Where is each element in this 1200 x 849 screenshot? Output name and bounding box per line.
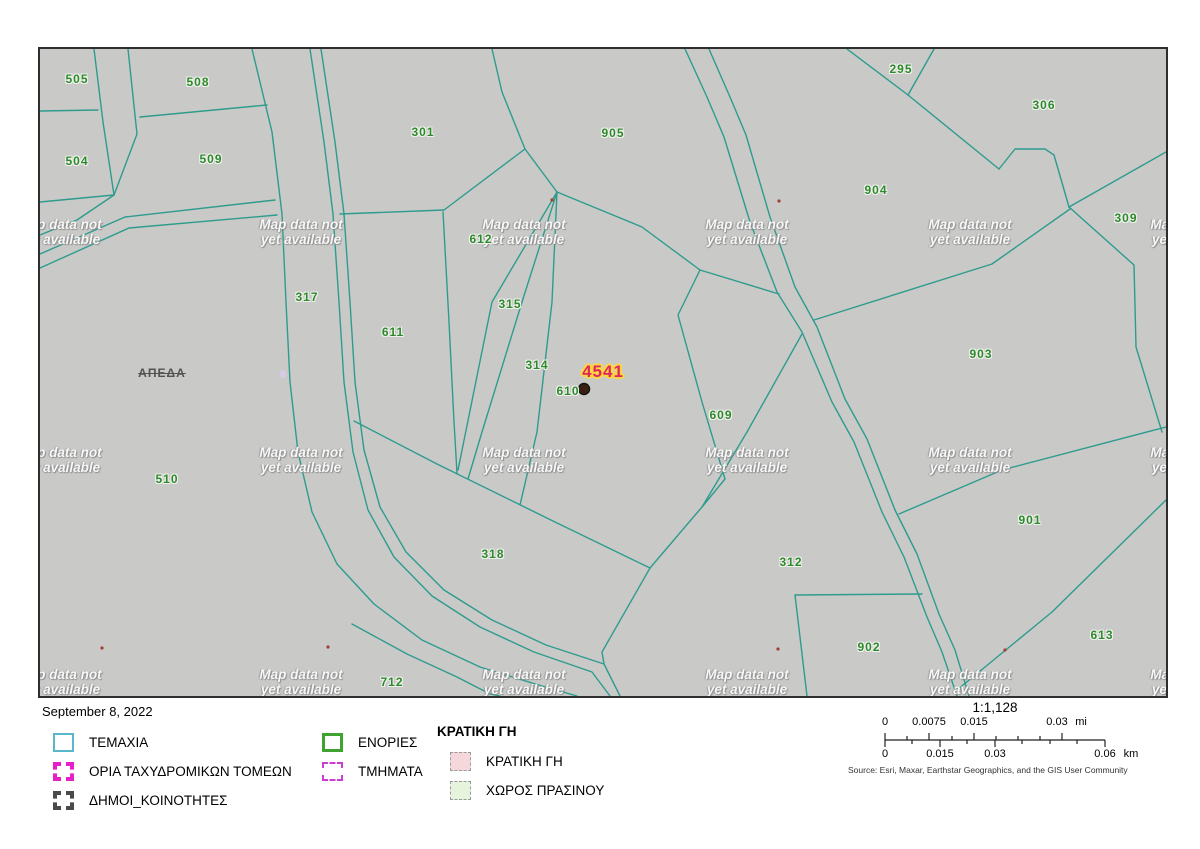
legend-item: ΔΗΜΟΙ_ΚΟΙΝΟΤΗΤΕΣ — [53, 786, 292, 815]
scale-tick-label: 0 — [882, 716, 888, 728]
small-dot — [280, 370, 286, 378]
scale-tick-label: 0.015 — [926, 748, 954, 760]
legend-item-label: ΧΩΡΟΣ ΠΡΑΣΙΝΟΥ — [486, 783, 604, 798]
scale-unit-label: km — [1124, 748, 1139, 760]
legend-swatch-dimoi — [53, 791, 74, 810]
legend-item: ΟΡΙΑ ΤΑΧΥΔΡΟΜΙΚΩΝ ΤΟΜΕΩΝ — [53, 757, 292, 786]
legend-swatch-kratiki — [450, 752, 471, 771]
legend-item: ΤΕΜΑΧΙΑ — [53, 728, 292, 757]
scale-tick-label: 0.06 — [1094, 748, 1115, 760]
legend-swatch-oria — [53, 762, 74, 781]
map-export-page: Map data notyet availableMap data notyet… — [0, 0, 1200, 849]
legend-group-header: ΚΡΑΤΙΚΗ ΓΗ — [437, 724, 604, 739]
legend-item-label: ΟΡΙΑ ΤΑΧΥΔΡΟΜΙΚΩΝ ΤΟΜΕΩΝ — [89, 764, 292, 779]
attribution-text: Source: Esri, Maxar, Earthstar Geographi… — [848, 765, 1148, 775]
legend-item: ΚΡΑΤΙΚΗ ΓΗ — [450, 747, 604, 776]
highlighted-parcel-label: 4541 — [582, 362, 624, 382]
legend-item-label: ΚΡΑΤΙΚΗ ΓΗ — [486, 754, 563, 769]
legend-column-1: ΤΕΜΑΧΙΑΟΡΙΑ ΤΑΧΥΔΡΟΜΙΚΩΝ ΤΟΜΕΩΝΔΗΜΟΙ_ΚΟΙ… — [53, 728, 292, 815]
legend-item: ΤΜΗΜΑΤΑ — [322, 757, 423, 786]
legend-item-label: ΤΕΜΑΧΙΑ — [89, 735, 148, 750]
legend-item-label: ΕΝΟΡΙΕΣ — [358, 735, 417, 750]
district-label: ΑΠΕΔΑ — [138, 366, 186, 380]
parcel-point-marker — [579, 384, 590, 395]
scale-unit-label: mi — [1075, 716, 1087, 728]
scale-tick-label: 0.015 — [960, 716, 988, 728]
map-canvas[interactable]: Map data notyet availableMap data notyet… — [38, 47, 1168, 698]
legend-item: ΧΩΡΟΣ ΠΡΑΣΙΝΟΥ — [450, 776, 604, 805]
legend-swatch-temaxia — [53, 733, 74, 752]
scale-ruler — [883, 732, 1109, 748]
legend-swatch-tmimata — [322, 762, 343, 781]
scale-ratio: 1:1,128 — [880, 700, 1110, 715]
scale-tick-label: 0.0075 — [912, 716, 946, 728]
scale-tick-label: 0.03 — [984, 748, 1005, 760]
legend-item-label: ΤΜΗΜΑΤΑ — [358, 764, 423, 779]
legend-item: ΕΝΟΡΙΕΣ — [322, 728, 423, 757]
legend-swatch-xoros — [450, 781, 471, 800]
legend-item-label: ΔΗΜΟΙ_ΚΟΙΝΟΤΗΤΕΣ — [89, 793, 227, 808]
scale-tick-label: 0.03 — [1046, 716, 1067, 728]
legend-column-3: ΚΡΑΤΙΚΗ ΓΗΚΡΑΤΙΚΗ ΓΗΧΩΡΟΣ ΠΡΑΣΙΝΟΥ — [437, 724, 604, 805]
scale-tick-label: 0 — [882, 748, 888, 760]
legend-swatch-enories — [322, 733, 343, 752]
map-date: September 8, 2022 — [42, 704, 153, 719]
legend-column-2: ΕΝΟΡΙΕΣΤΜΗΜΑΤΑ — [322, 728, 423, 786]
